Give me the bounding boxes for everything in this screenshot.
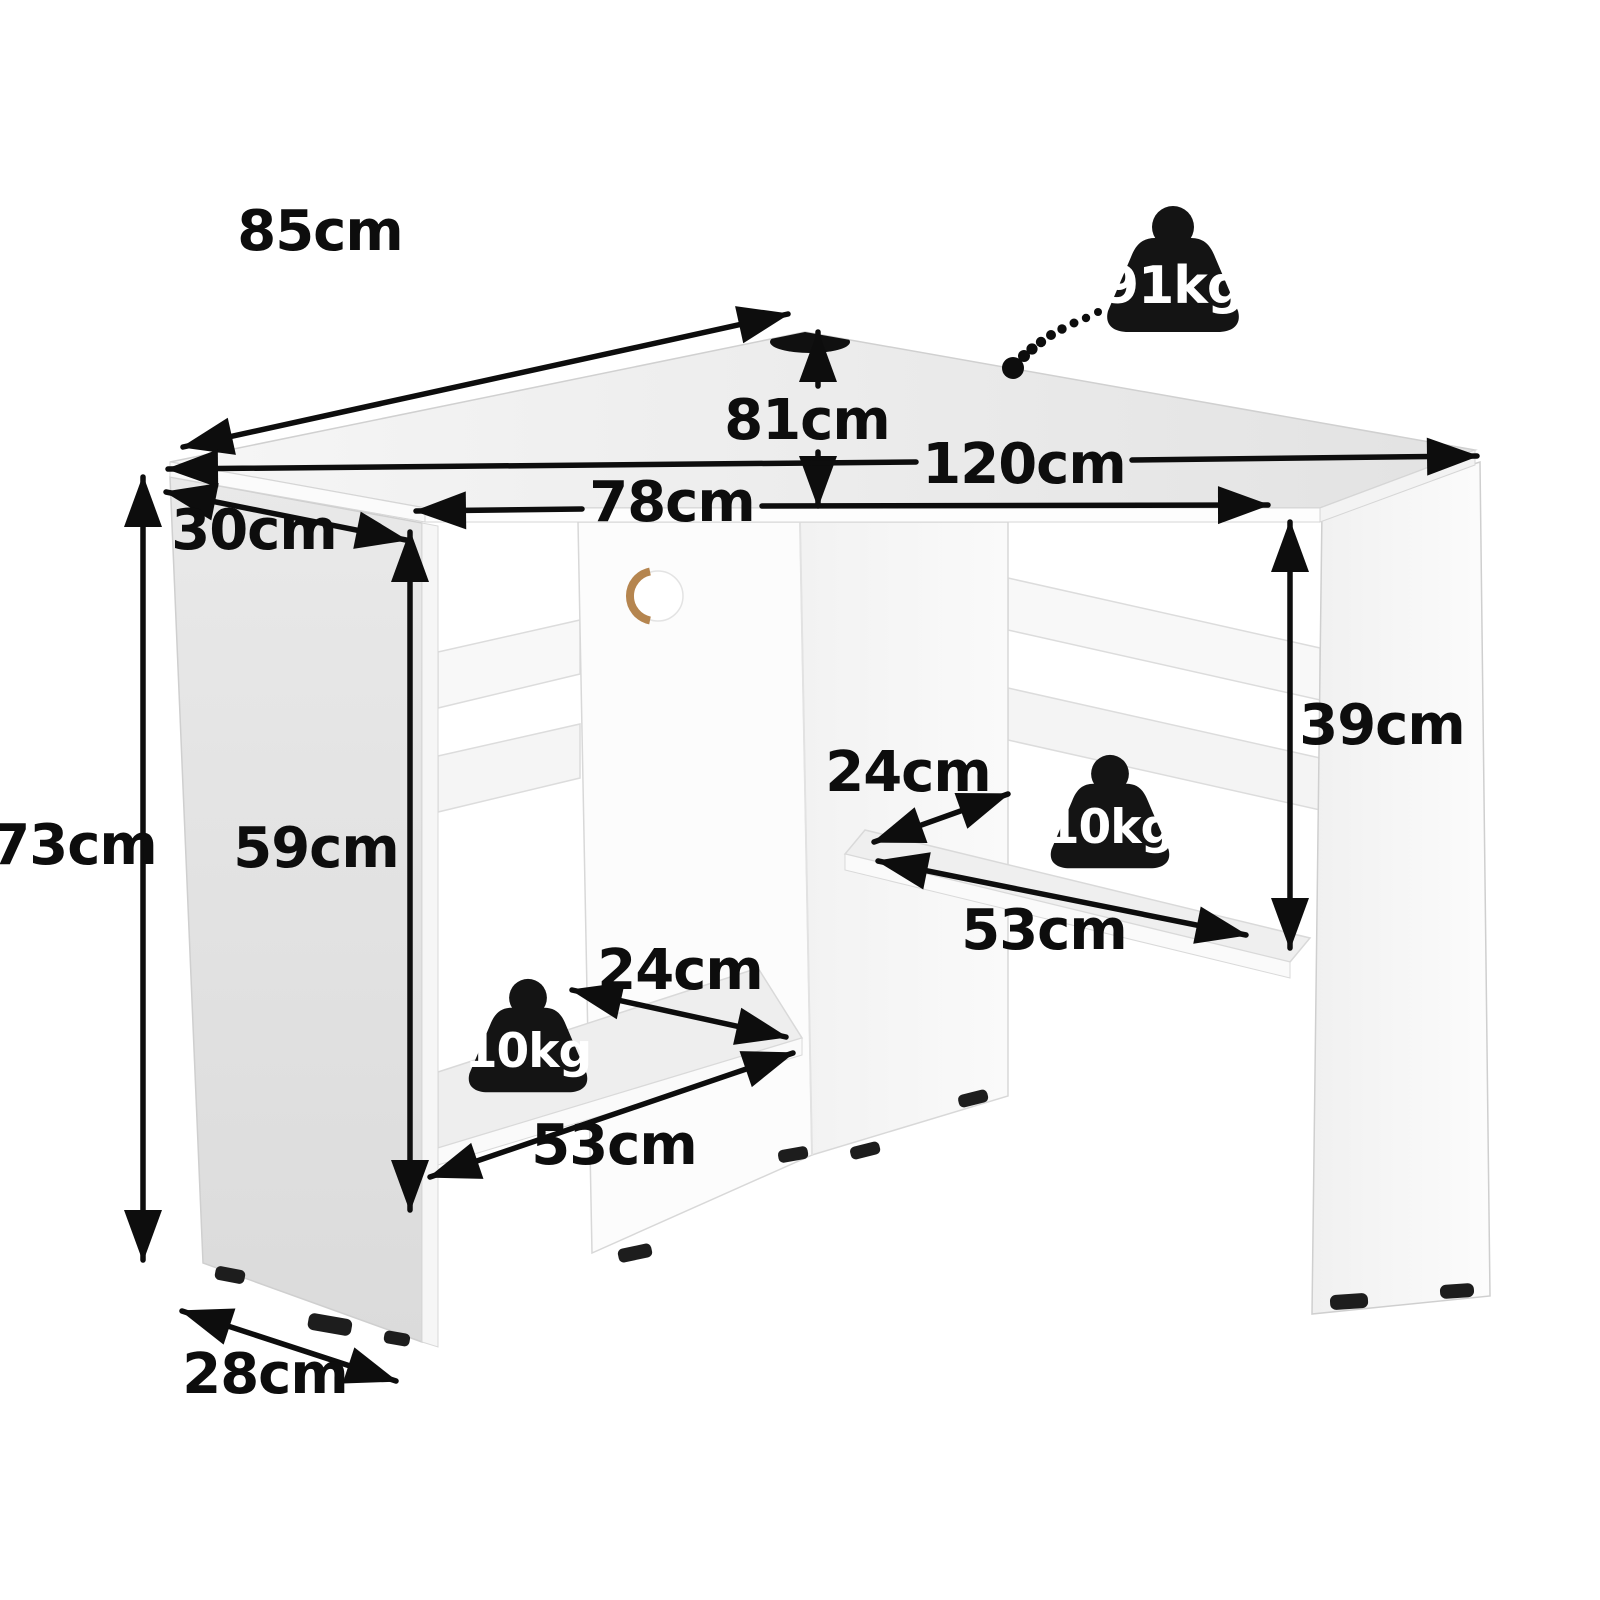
dimension-label-underdesk-clearance: 59cm (233, 816, 398, 881)
desk-foot (849, 1141, 881, 1161)
furniture-dimension-diagram: 85cm 81cm 120cm 78cm 30cm 73cm 59cm 39cm… (0, 0, 1600, 1600)
left-shelf-capacity-label: 10kg (465, 1024, 591, 1079)
center-column-right-board (800, 522, 1008, 1155)
dimension-label-back-left-edge: 85cm (237, 199, 402, 264)
dimension-arrow-front-width-left (416, 509, 582, 511)
left-side-panel (170, 477, 422, 1342)
grommet-hole (770, 331, 850, 353)
dimension-label-base-depth: 28cm (182, 1342, 347, 1407)
dimension-label-desktop-depth: 81cm (724, 388, 889, 453)
left-lower-rail (438, 724, 580, 812)
desk-foot (617, 1243, 653, 1264)
dimension-label-right-shelf-width: 53cm (961, 898, 1126, 963)
dimension-label-left-side-depth: 30cm (171, 498, 336, 563)
left-side-panel-inner-edge (422, 523, 438, 1347)
desktop-capacity-label: 91kg (1103, 256, 1243, 316)
dimension-label-back-width: 120cm (922, 432, 1125, 497)
dimension-label-left-shelf-width: 53cm (531, 1113, 696, 1178)
dimension-label-left-shelf-depth: 24cm (597, 938, 762, 1003)
right-shelf-capacity-label: 10kg (1047, 800, 1173, 855)
dimension-label-right-shelf-depth: 24cm (825, 740, 990, 805)
desk-foot (1440, 1283, 1475, 1299)
right-upper-rail (1008, 578, 1320, 700)
desk-foot (307, 1312, 353, 1336)
left-upper-rail (438, 620, 580, 708)
dimension-label-total-height: 73cm (0, 813, 157, 878)
dimension-label-right-shelf-to-top: 39cm (1299, 693, 1464, 758)
desk-foot (1330, 1293, 1369, 1311)
dimension-label-front-width: 78cm (589, 470, 754, 535)
right-lower-rail (1008, 688, 1320, 810)
dimension-arrow-front-width-right (762, 505, 1268, 506)
dotted-pointer-line (1002, 308, 1102, 379)
right-side-panel (1312, 462, 1490, 1314)
